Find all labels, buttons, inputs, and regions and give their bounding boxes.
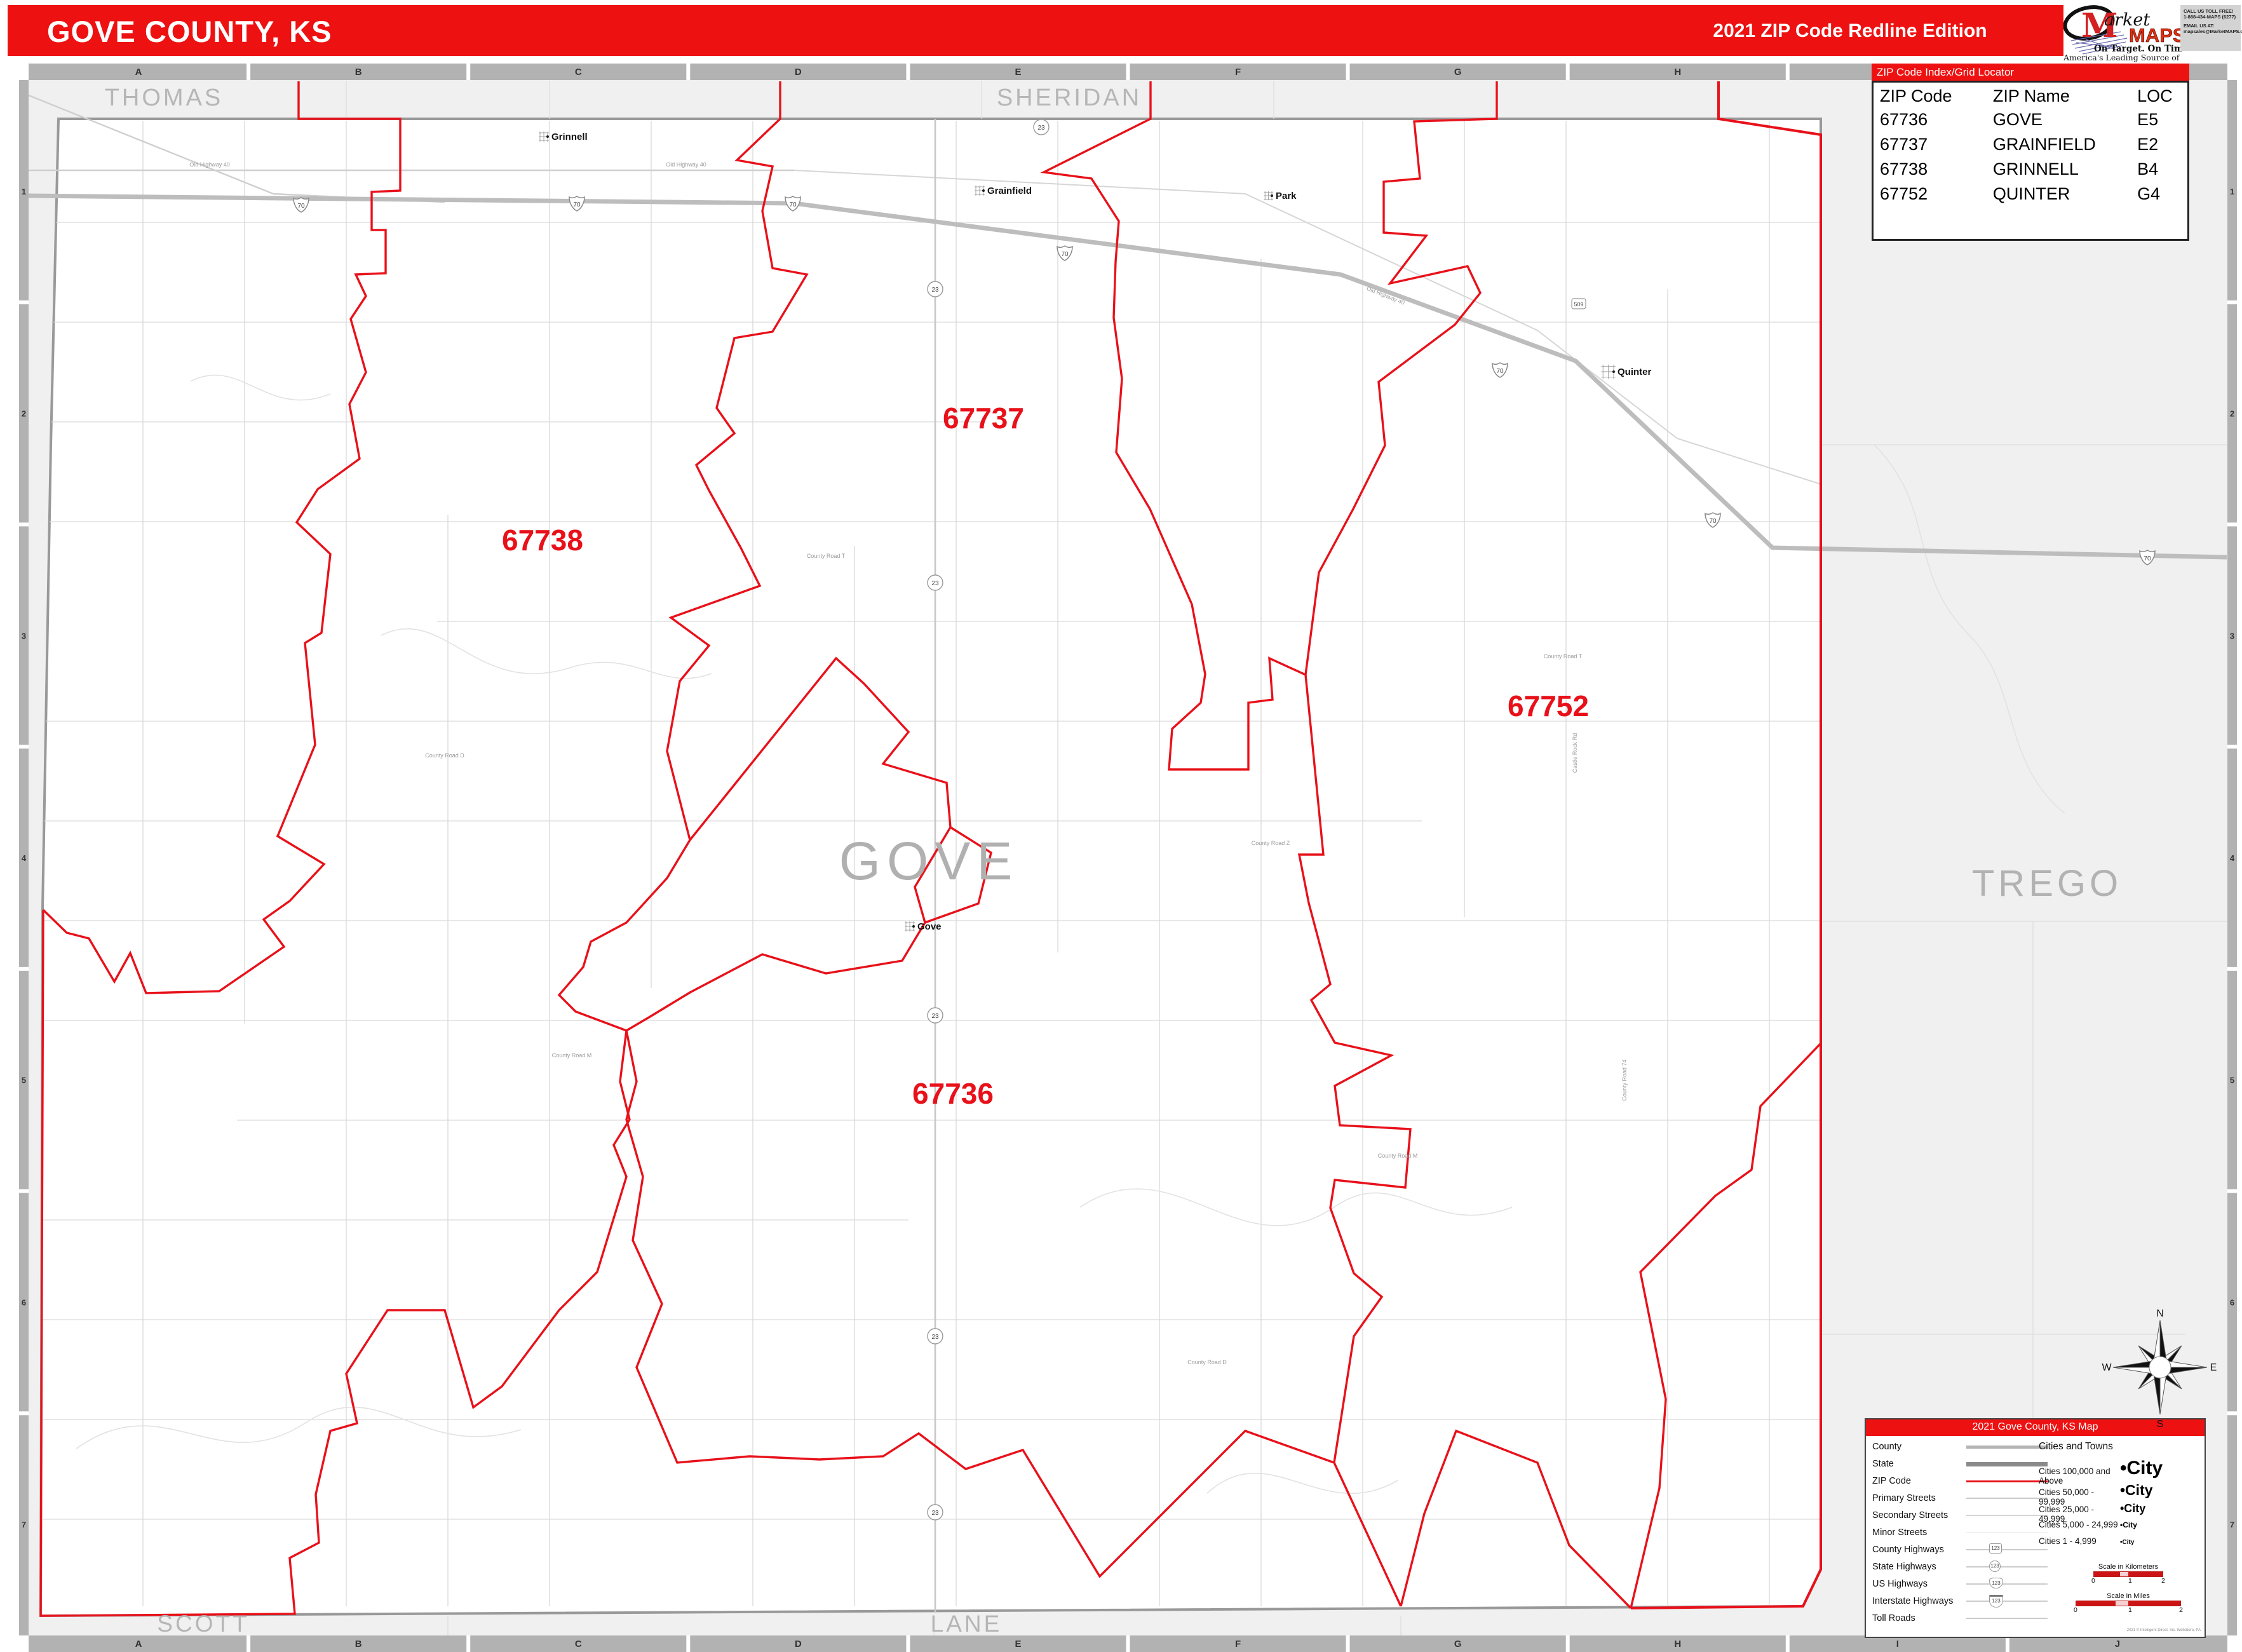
zip-label-67737: 67737: [943, 402, 1024, 435]
state-highway-23-shield-icon: 23: [928, 1505, 943, 1520]
compass-w: W: [2102, 1362, 2112, 1373]
contact-phone: 1-888-434-MAPS (6277): [2184, 14, 2238, 20]
town-label: Park: [1276, 191, 1297, 201]
table-row: 67738 GRINNELL B4: [1874, 157, 2187, 182]
city-class-row: Cities 5,000 - 24,999•City: [2039, 1520, 2137, 1529]
grid-number: 5: [22, 1076, 26, 1085]
legend-item-state-hwy: State Highways123: [1872, 1560, 2048, 1574]
road-label: County Road T: [1544, 653, 1583, 660]
county-highway-shield-icon: 123: [1989, 1543, 2002, 1554]
zip-index-title: ZIP Code Index/Grid Locator: [1872, 64, 2189, 81]
scale-miles: Scale in Miles 0 1 2: [2076, 1592, 2181, 1614]
neighbor-label-lane: LANE: [931, 1611, 1003, 1637]
grid-number: 3: [22, 631, 26, 640]
svg-text:70: 70: [1496, 368, 1504, 375]
neighbor-label-scott: SCOTT: [157, 1611, 249, 1637]
town-label: Grinnell: [551, 132, 588, 142]
zip-index-header-row: ZIP Code ZIP Name LOC: [1874, 85, 2187, 107]
compass-e: E: [2210, 1362, 2217, 1373]
marketmaps-logo: M arket MAPS On Target. On Time. America…: [2063, 1, 2182, 62]
legend-item-toll: Toll Roads: [1872, 1611, 2048, 1625]
scale-kilometers: Scale in Kilometers 0 1 2: [2093, 1563, 2163, 1585]
road-label: County Road Z: [1252, 840, 1290, 846]
svg-text:70: 70: [297, 203, 305, 210]
town-label: Gove: [917, 921, 942, 932]
compass-rose-icon: N E S W: [2097, 1304, 2224, 1431]
town-label: Quinter: [1617, 367, 1651, 377]
grid-letter: C: [575, 67, 582, 78]
logo-maps: MAPS: [2129, 24, 2182, 46]
zip-cell: 67737: [1874, 132, 1987, 157]
name-cell: GRINNELL: [1987, 157, 2131, 182]
col-loc: LOC: [2131, 85, 2187, 107]
grid-letter: E: [1015, 67, 1021, 78]
road-label: County Road D: [1187, 1359, 1227, 1365]
table-row: 67737 GRAINFIELD E2: [1874, 132, 2187, 157]
contact-box: CALL US TOLL FREE! 1-888-434-MAPS (6277)…: [2180, 5, 2241, 51]
svg-text:23: 23: [931, 287, 939, 294]
state-highway-23-shield-icon: 23: [928, 1329, 943, 1344]
neighbor-label-trego: TREGO: [1972, 863, 2122, 904]
zip-cell: 67736: [1874, 107, 1987, 132]
grid-number: 5: [2230, 1076, 2234, 1085]
grid-letter: H: [1674, 67, 1681, 78]
grid-letter: G: [1454, 67, 1462, 78]
zip-label-67738: 67738: [502, 524, 583, 557]
loc-cell: E5: [2131, 107, 2187, 132]
page-title: GOVE COUNTY, KS: [47, 14, 332, 49]
svg-text:70: 70: [1709, 518, 1717, 525]
edition-label: 2021 ZIP Code Redline Edition: [1640, 20, 2060, 42]
svg-text:70: 70: [573, 201, 581, 208]
legend-item-state: State: [1872, 1457, 2048, 1471]
grid-letter: F: [1235, 67, 1241, 78]
legend-item-interstate: Interstate Highways123: [1872, 1594, 2048, 1608]
legend-item-us-hwy: US Highways123: [1872, 1577, 2048, 1591]
grid-number: 1: [2230, 187, 2234, 196]
road-label: Old Highway 40: [666, 161, 706, 168]
road-label: County Road M: [552, 1052, 592, 1059]
copyright-text: 2021 © Intelligent Direct, Inc. Wellsbor…: [2127, 1628, 2201, 1632]
state-highway-shield-icon: 123: [1989, 1561, 2001, 1572]
zip-label-67752: 67752: [1508, 689, 1589, 722]
zip-cell: 67752: [1874, 182, 1987, 207]
compass-s: S: [2157, 1419, 2164, 1430]
zip-index-table: ZIP Code Index/Grid Locator ZIP Code ZIP…: [1872, 81, 2189, 241]
grid-number: 2: [2230, 409, 2234, 419]
grid-letter: D: [795, 67, 802, 78]
loc-cell: G4: [2131, 182, 2187, 207]
grid-letter: D: [795, 1639, 802, 1649]
name-cell: GRAINFIELD: [1987, 132, 2131, 157]
town-label: Grainfield: [987, 186, 1032, 196]
page: { "header": { "title": "GOVE COUNTY, KS"…: [0, 0, 2242, 1652]
svg-text:23: 23: [931, 1510, 939, 1517]
col-zip-code: ZIP Code: [1874, 85, 1987, 107]
legend-item-secondary: Secondary Streets: [1872, 1508, 2048, 1522]
state-highway-23-shield-icon: 23: [1034, 119, 1049, 135]
legend-item-zip: ZIP Code: [1872, 1474, 2048, 1488]
svg-text:70: 70: [789, 201, 797, 208]
grid-letter: B: [355, 67, 362, 78]
grid-number: 6: [2230, 1297, 2234, 1307]
road-label: County Road 74: [1621, 1059, 1628, 1100]
legend-item-primary: Primary Streets: [1872, 1491, 2048, 1505]
svg-text:23: 23: [931, 1334, 939, 1341]
svg-text:23: 23: [1037, 125, 1045, 132]
legend-item-county-hwy: County Highways123: [1872, 1543, 2048, 1557]
road-label: County Road D: [425, 752, 464, 759]
contact-email-label: EMAIL US AT:: [2184, 23, 2238, 29]
grid-letter: J: [2115, 1639, 2120, 1649]
cities-legend-title: Cities and Towns: [2039, 1441, 2113, 1452]
neighbor-label-thomas: THOMAS: [105, 85, 224, 111]
grid-number: 3: [2230, 631, 2234, 640]
loc-cell: B4: [2131, 157, 2187, 182]
grid-number: 7: [22, 1520, 26, 1529]
road-label: County Road M: [1378, 1153, 1418, 1159]
grid-letter: I: [1896, 1639, 1899, 1649]
name-cell: GOVE: [1987, 107, 2131, 132]
county-name-label: GOVE: [839, 831, 1019, 891]
grid-letter: G: [1454, 1639, 1462, 1649]
grid-letter: E: [1015, 1639, 1021, 1649]
zip-label-67736: 67736: [912, 1077, 994, 1110]
grid-number: 6: [22, 1297, 26, 1307]
name-cell: QUINTER: [1987, 182, 2131, 207]
grid-letter: B: [355, 1639, 362, 1649]
loc-cell: E2: [2131, 132, 2187, 157]
county-road-509-shield-icon: 509: [1572, 299, 1586, 309]
county-map: AABBCCDDEEFFGGHHIIJJ11223344556677 THOMA…: [0, 60, 2242, 1652]
grid-number: 1: [22, 187, 26, 196]
grid-letter: A: [135, 67, 142, 78]
grid-letter: H: [1674, 1639, 1681, 1649]
svg-text:509: 509: [1574, 301, 1583, 308]
city-class-row: Cities 1 - 4,999•City: [2039, 1536, 2134, 1546]
legend-item-county: County: [1872, 1440, 2048, 1454]
neighbor-label-sheridan: SHERIDAN: [997, 85, 1142, 111]
interstate-shield-icon: 123: [1989, 1595, 2003, 1608]
grid-number: 4: [2230, 853, 2235, 863]
grid-letter: C: [575, 1639, 582, 1649]
contact-email: mapsales@MarketMAPS.com: [2184, 29, 2238, 34]
svg-text:70: 70: [1061, 251, 1069, 258]
svg-text:23: 23: [931, 580, 939, 587]
contact-tollfree-label: CALL US TOLL FREE!: [2184, 8, 2238, 14]
grid-number: 7: [2230, 1520, 2234, 1529]
state-highway-23-shield-icon: 23: [928, 281, 943, 297]
state-highway-23-shield-icon: 23: [928, 1008, 943, 1023]
grid-letter: A: [135, 1639, 142, 1649]
svg-text:70: 70: [2144, 555, 2151, 562]
col-zip-name: ZIP Name: [1987, 85, 2131, 107]
road-label: Castle Rock Rd: [1572, 733, 1578, 773]
road-label: County Road T: [807, 553, 846, 559]
map-legend: 2021 Gove County, KS Map County State ZI…: [1865, 1418, 2206, 1638]
state-highway-23-shield-icon: 23: [928, 575, 943, 590]
road-label: Old Highway 40: [189, 161, 230, 168]
grid-number: 2: [22, 409, 26, 419]
zip-cell: 67738: [1874, 157, 1987, 182]
logo-graphic: M arket MAPS On Target. On Time. America…: [2063, 1, 2182, 62]
header-bar: GOVE COUNTY, KS 2021 ZIP Code Redline Ed…: [8, 5, 2063, 56]
compass-n: N: [2156, 1308, 2164, 1319]
us-highway-shield-icon: 123: [1989, 1578, 2003, 1588]
legend-item-minor: Minor Streets: [1872, 1526, 2048, 1540]
table-row: 67752 QUINTER G4: [1874, 182, 2187, 207]
grid-letter: F: [1235, 1639, 1241, 1649]
svg-text:23: 23: [931, 1013, 939, 1020]
grid-number: 4: [22, 853, 27, 863]
table-row: 67736 GOVE E5: [1874, 107, 2187, 132]
